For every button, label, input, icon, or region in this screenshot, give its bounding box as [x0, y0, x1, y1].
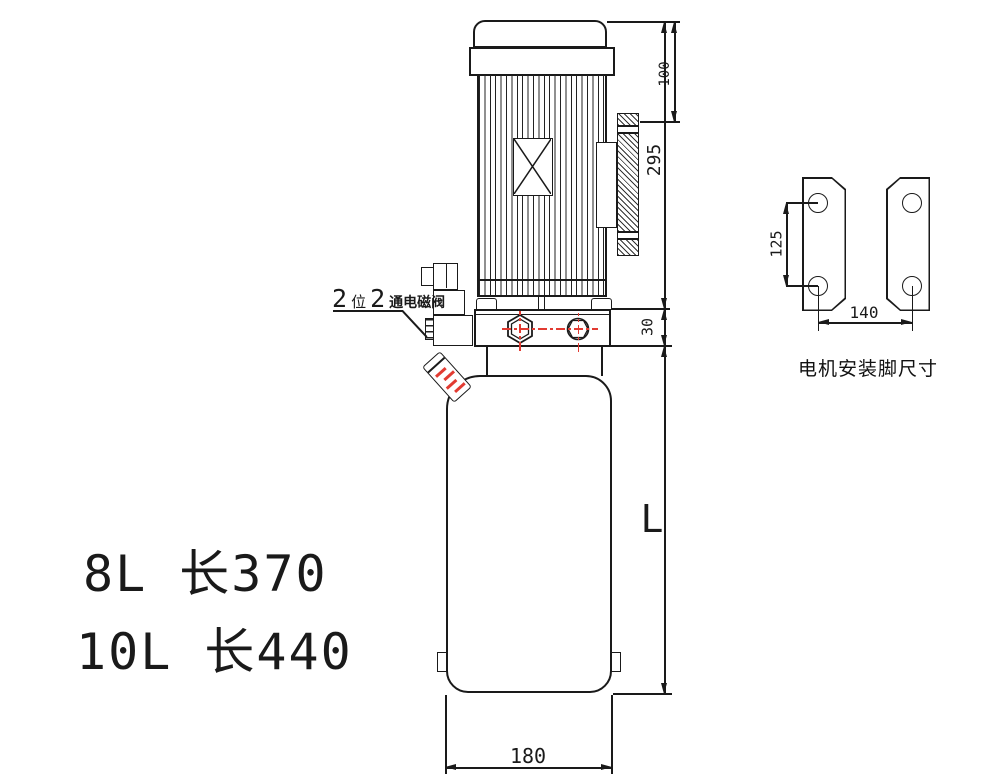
center-line-plug-left — [519, 311, 521, 351]
arrowhead — [661, 335, 667, 346]
arrowhead — [671, 111, 677, 122]
motor-nameplate — [513, 138, 553, 196]
nameplate-cross-icon — [514, 139, 551, 194]
dim-label-30: 30 — [641, 318, 656, 336]
center-line-horizontal — [502, 328, 598, 330]
ext-line-tank-left — [445, 695, 447, 774]
valve-label-text: 通电磁阀 — [389, 295, 445, 309]
arrowhead — [661, 298, 667, 309]
dim-line-140 — [818, 322, 912, 324]
motor-band — [469, 47, 615, 76]
motor-endbell-line — [477, 279, 607, 281]
dim-line-100 — [674, 22, 676, 122]
spec-text-10l: 10L 长440 — [76, 627, 353, 677]
arrowhead — [601, 764, 612, 770]
valve-label-wei: 位 — [351, 295, 366, 310]
tank-lug-left — [437, 652, 447, 672]
dim-label-295: 295 — [646, 144, 664, 177]
dim-label-180: 180 — [510, 746, 546, 766]
manifold-top-plate-line — [474, 314, 611, 315]
arrowhead — [661, 346, 667, 357]
hydraulic-power-unit-drawing: 2 位 2 通电磁阀 100 295 30 L 180 — [0, 0, 1000, 780]
solenoid-coil — [433, 315, 473, 346]
arrowhead — [661, 309, 667, 320]
breather-mark — [454, 382, 465, 393]
arrowhead — [445, 764, 456, 770]
terminal-box-band-bottom — [617, 232, 639, 239]
valve-leader-diagonal — [402, 310, 428, 337]
leader-hole-bottom — [786, 285, 818, 287]
arrowhead — [661, 683, 667, 694]
valve-label-2b: 2 — [370, 286, 385, 311]
tank-neck-left — [486, 347, 488, 376]
terminal-box-plate — [596, 142, 617, 228]
ext-line-motor-top — [607, 21, 680, 23]
terminal-box-body — [617, 133, 639, 232]
terminal-box-band-top — [617, 126, 639, 133]
terminal-box-cap-bottom — [617, 239, 639, 256]
dim-label-140: 140 — [850, 305, 879, 321]
leader-hole-top — [786, 202, 818, 204]
tank-lug-right — [611, 652, 621, 672]
tank — [446, 375, 612, 693]
arrowhead — [783, 203, 789, 214]
dim-line-125 — [786, 203, 788, 286]
ext-line-tank-right — [611, 695, 613, 774]
spec-text-8l: 8L 长370 — [83, 549, 328, 599]
bracket-caption: 电机安装脚尺寸 — [798, 354, 938, 381]
dim-line-L — [664, 346, 666, 694]
mounting-hole — [902, 193, 922, 213]
tank-neck-right — [601, 347, 603, 376]
dim-label-125: 125 — [770, 230, 785, 257]
center-line-plug-right — [578, 313, 580, 352]
arrowhead — [661, 22, 667, 33]
valve-label-2a: 2 — [332, 286, 347, 311]
terminal-box-cap-top — [617, 113, 639, 126]
valve-label: 2 位 2 通电磁阀 — [332, 286, 445, 311]
arrowhead — [783, 275, 789, 286]
arrowhead — [818, 319, 829, 325]
dim-label-L: L — [641, 500, 664, 538]
arrowhead — [901, 319, 912, 325]
motor-fan-cover — [473, 20, 607, 48]
arrowhead — [671, 22, 677, 33]
